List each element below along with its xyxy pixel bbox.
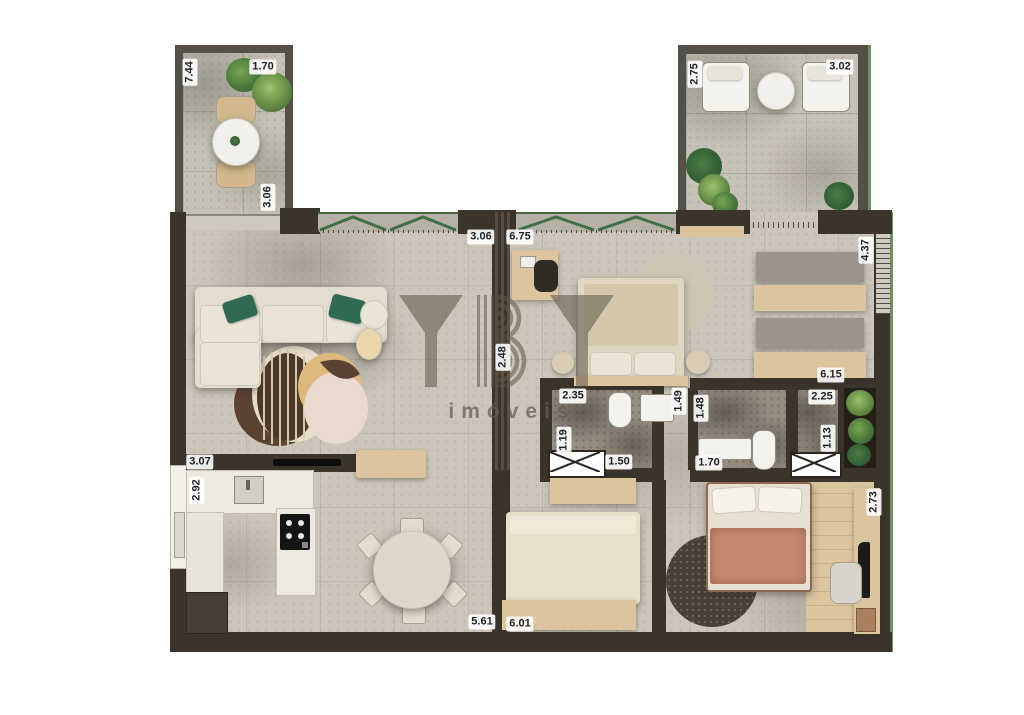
terrace-trim-green [868, 45, 871, 213]
bed-pillow [757, 486, 802, 514]
dim-label: 2.35 [559, 389, 586, 404]
terrace-wall-top [678, 45, 868, 54]
bedroom3-blanket [710, 528, 806, 584]
bed-pillow [634, 352, 676, 376]
entry-door-leaf [174, 512, 185, 558]
wardrobe-drawer [754, 285, 866, 311]
bed-pillow [590, 352, 632, 376]
window-sill-ticks [318, 230, 458, 233]
lounge-cushion [708, 66, 742, 80]
dim-label: 6.15 [817, 368, 844, 383]
dim-label: 1.70 [695, 456, 722, 471]
terrace-wall-left [678, 45, 686, 213]
dim-label: 1.13 [821, 424, 836, 451]
plant [847, 444, 871, 466]
nightstand [552, 352, 574, 374]
plant [846, 390, 874, 416]
dim-label: 1.50 [605, 455, 632, 470]
dim-label: 3.06 [261, 183, 276, 210]
fridge [186, 592, 228, 634]
dim-label: 1.19 [557, 426, 572, 453]
side-table [356, 328, 382, 360]
dim-label: 2.75 [688, 60, 703, 87]
watermark-subtitle: imóveis [448, 400, 575, 424]
dim-label: 3.07 [186, 455, 213, 470]
partition-living-bedroom [492, 212, 510, 470]
tv [273, 459, 341, 466]
dim-label: 1.70 [249, 60, 276, 75]
wardrobe-drawer [754, 352, 866, 378]
bed-pillow [711, 485, 757, 514]
dining-table [373, 531, 451, 609]
floor-plan-render: imóveis 7.44 1.70 3.06 2.75 3.02 3.06 6.… [0, 0, 1024, 715]
bedroom2-dresser [550, 478, 636, 504]
shower-box [548, 450, 606, 478]
dim-label: 6.01 [506, 617, 533, 632]
wall-left [170, 212, 186, 652]
master-bed-blanket [584, 284, 678, 346]
wall-bottom [172, 632, 892, 652]
plant [252, 72, 292, 112]
stool [856, 608, 876, 632]
wardrobe-shelf [756, 252, 864, 282]
wardrobe-shelf [756, 318, 864, 348]
terrace-window-ticks [748, 222, 820, 228]
desk-chair [534, 260, 558, 292]
desk-chair [830, 562, 862, 604]
dim-label: 1.48 [694, 394, 709, 421]
dim-label: 2.48 [496, 343, 511, 370]
balcony-sliding-door [186, 214, 280, 230]
table-plant [230, 136, 240, 146]
dim-label: 2.92 [190, 476, 205, 503]
wall-top-stub [818, 210, 892, 234]
shower-box [790, 452, 842, 478]
terrace-table [757, 72, 795, 110]
dim-label: 6.75 [506, 230, 533, 245]
dim-label: 2.73 [867, 488, 882, 515]
bathroom-sink [640, 394, 674, 422]
wall-bedroom2-bedroom3 [652, 480, 666, 652]
kitchen-counter-left [186, 512, 224, 594]
balcony-wall-top [175, 45, 293, 53]
dim-label: 7.44 [183, 58, 198, 85]
nightstand [686, 350, 710, 374]
chaise-cushion [200, 342, 260, 386]
plant [824, 182, 854, 210]
dim-label: 2.25 [808, 390, 835, 405]
toilet [608, 392, 632, 428]
plant [848, 418, 874, 444]
window-sill-ticks [516, 230, 676, 233]
dim-label: 1.49 [672, 387, 687, 414]
right-trim-green [890, 212, 893, 652]
toilet [752, 430, 776, 470]
window-living [318, 212, 458, 232]
headboard [574, 376, 688, 386]
dim-label: 3.06 [467, 230, 494, 245]
wall-top-stub [280, 208, 320, 234]
bedroom2-pillows [510, 516, 636, 534]
dim-label: 4.37 [859, 236, 874, 263]
window-bedroom [516, 212, 676, 232]
dim-label: 5.61 [468, 615, 495, 630]
dining-bench [356, 450, 426, 478]
terrace-window-sill [680, 226, 744, 237]
balcony-wall-right [285, 45, 293, 215]
cooktop [280, 514, 310, 550]
sofa-cushion [262, 305, 324, 343]
dim-label: 3.02 [826, 60, 853, 75]
faucet [246, 480, 250, 490]
round-pillow [360, 300, 388, 330]
wardrobe-window [876, 234, 890, 314]
terrace-wall-right [858, 45, 868, 213]
